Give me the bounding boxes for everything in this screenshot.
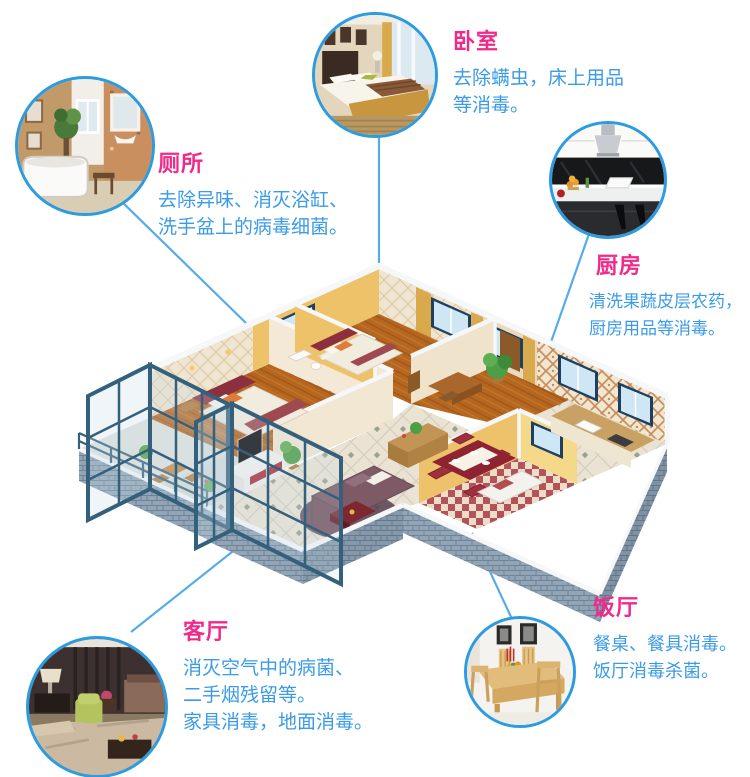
kitchen-room-photo xyxy=(552,124,664,236)
toilet-desc-line: 洗手盆上的病毒细菌。 xyxy=(158,214,348,241)
bedroom-photo-circle xyxy=(312,12,438,138)
dining-desc-line: 餐桌、餐具消毒。 xyxy=(593,631,737,658)
infographic-canvas: 卧室 去除螨虫，床上用品 等消毒。 xyxy=(0,0,750,777)
kitchen-desc-line: 清洗果蔬皮层农药， xyxy=(589,289,742,316)
living-desc-line: 二手烟残留等。 xyxy=(183,682,373,709)
kitchen-callout: 厨房 清洗果蔬皮层农药， 厨房用品等消毒。 xyxy=(596,248,742,343)
bedroom-desc-line: 去除螨虫，床上用品 xyxy=(453,65,624,92)
living-title: 客厅 xyxy=(183,614,373,646)
dining-title: 饭厅 xyxy=(593,590,737,622)
wall-lamp-icon xyxy=(189,365,194,370)
kitchen-desc-line: 厨房用品等消毒。 xyxy=(589,316,742,343)
bathroom-room-photo xyxy=(18,79,152,213)
kitchen-photo-circle xyxy=(549,121,667,239)
dining-desc-line: 饭厅消毒杀菌。 xyxy=(593,658,737,685)
toilet-photo-circle xyxy=(15,76,155,216)
toilet-callout: 厕所 去除异味、消灭浴缸、 洗手盆上的病毒细菌。 xyxy=(158,146,348,241)
bedroom-callout: 卧室 去除螨虫，床上用品 等消毒。 xyxy=(453,24,624,119)
bedroom-desc-line: 等消毒。 xyxy=(453,92,624,119)
toilet-title: 厕所 xyxy=(158,146,348,178)
dining-photo-circle xyxy=(464,616,576,728)
living-desc-line: 家具消毒，地面消毒。 xyxy=(183,709,373,736)
wall-lamp-icon xyxy=(225,349,230,354)
living-desc-line: 消灭空气中的病菌、 xyxy=(183,655,373,682)
living-callout: 客厅 消灭空气中的病菌、 二手烟残留等。 家具消毒，地面消毒。 xyxy=(183,614,373,736)
toilet-desc-line: 去除异味、消灭浴缸、 xyxy=(158,187,348,214)
bedroom-room-photo xyxy=(315,15,435,135)
apartment-3d-model xyxy=(79,266,667,622)
dining-callout: 饭厅 餐桌、餐具消毒。 饭厅消毒杀菌。 xyxy=(593,590,737,685)
bedroom-title: 卧室 xyxy=(453,24,624,56)
connector-line-kitchen xyxy=(551,234,589,342)
kitchen-title: 厨房 xyxy=(596,248,742,280)
dining-room-photo xyxy=(467,619,573,725)
living-photo-circle xyxy=(26,636,168,777)
living-room-photo xyxy=(29,639,165,775)
